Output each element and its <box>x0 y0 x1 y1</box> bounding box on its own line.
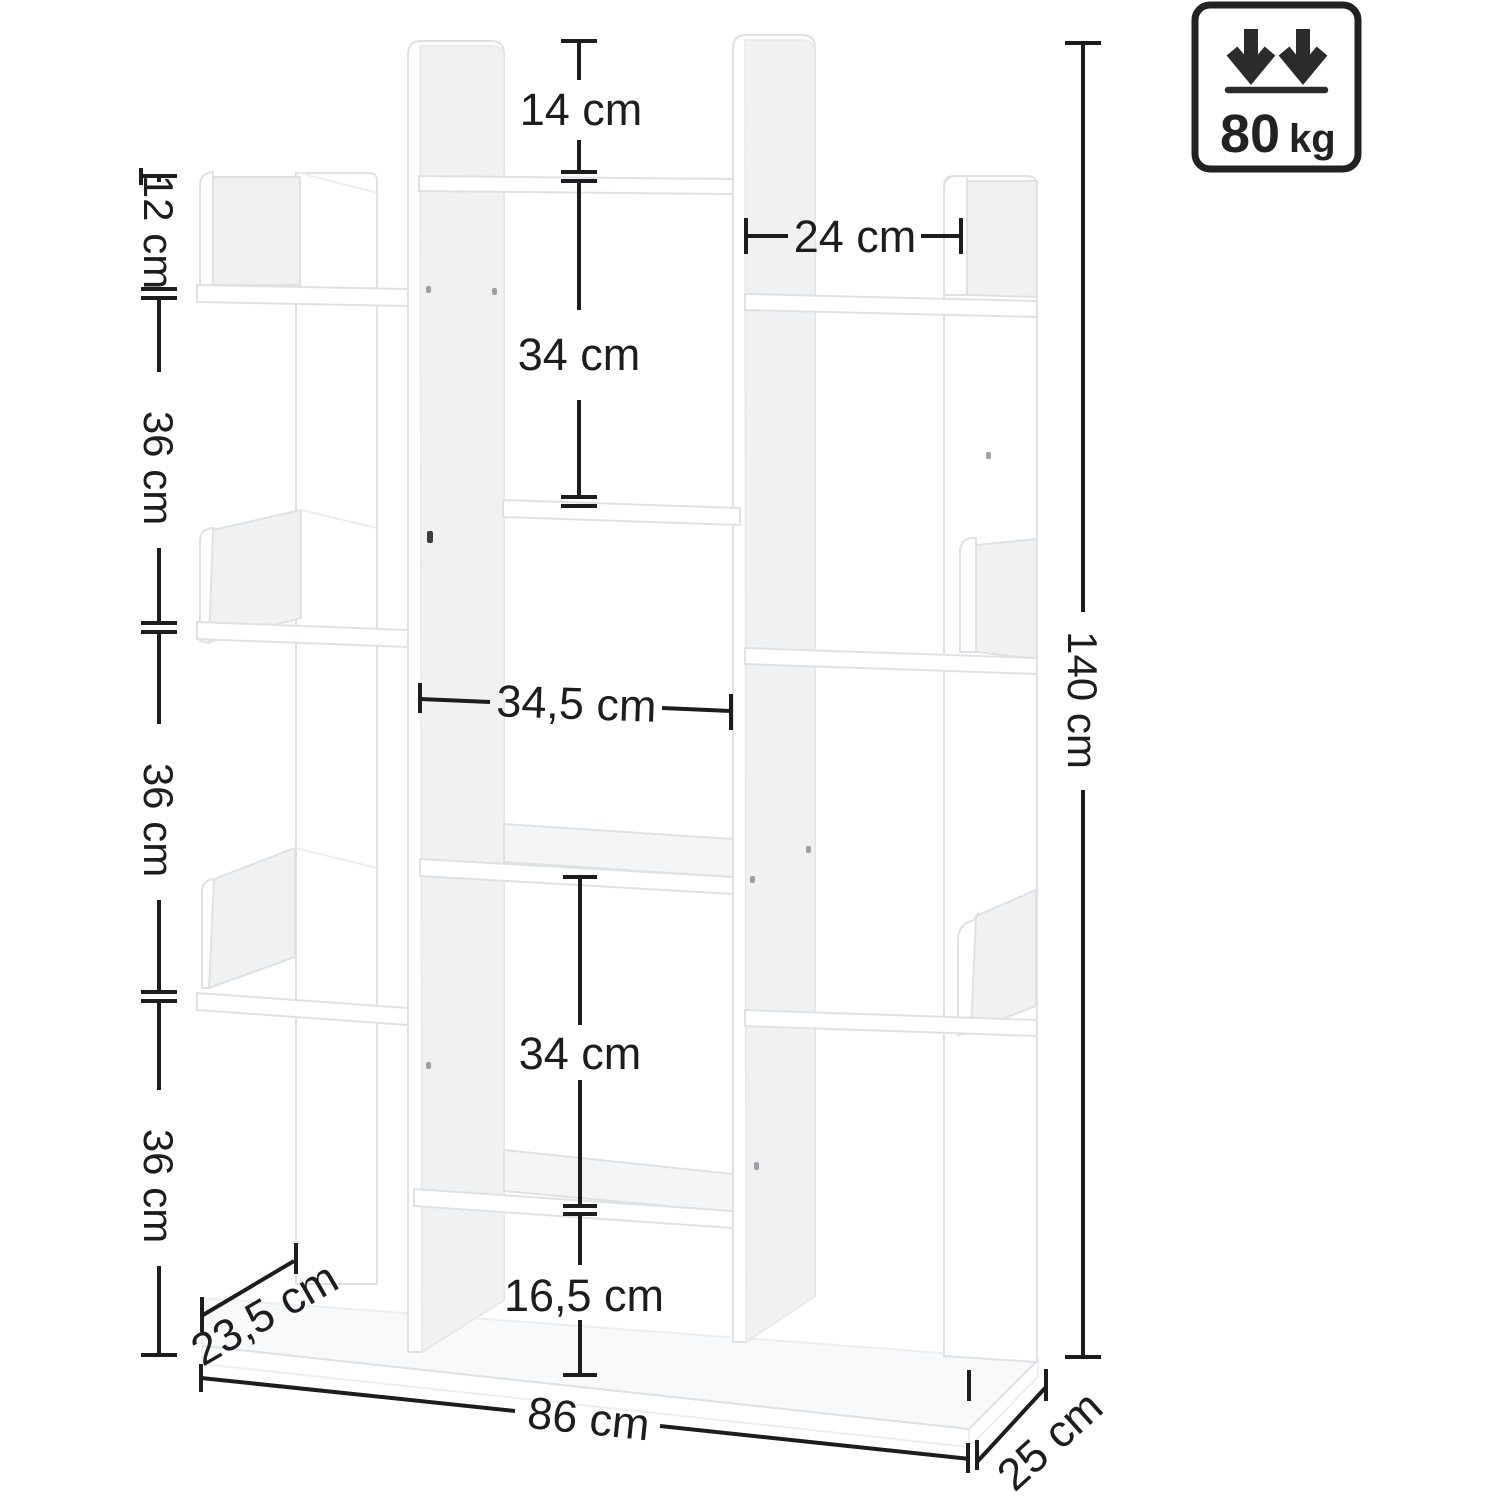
svg-text:24 cm: 24 cm <box>794 211 917 262</box>
svg-text:80: 80 <box>1220 104 1280 164</box>
svg-text:36 cm: 36 cm <box>135 411 182 525</box>
svg-text:36 cm: 36 cm <box>135 763 182 877</box>
svg-text:34,5 cm: 34,5 cm <box>496 675 658 732</box>
svg-text:12 cm: 12 cm <box>135 175 182 289</box>
svg-text:36 cm: 36 cm <box>135 1129 182 1243</box>
svg-text:16,5 cm: 16,5 cm <box>504 1270 664 1321</box>
svg-text:kg: kg <box>1289 117 1336 161</box>
svg-text:34 cm: 34 cm <box>519 1028 642 1079</box>
svg-text:140 cm: 140 cm <box>1059 631 1106 769</box>
svg-text:14 cm: 14 cm <box>520 84 643 135</box>
svg-text:34 cm: 34 cm <box>518 329 641 380</box>
